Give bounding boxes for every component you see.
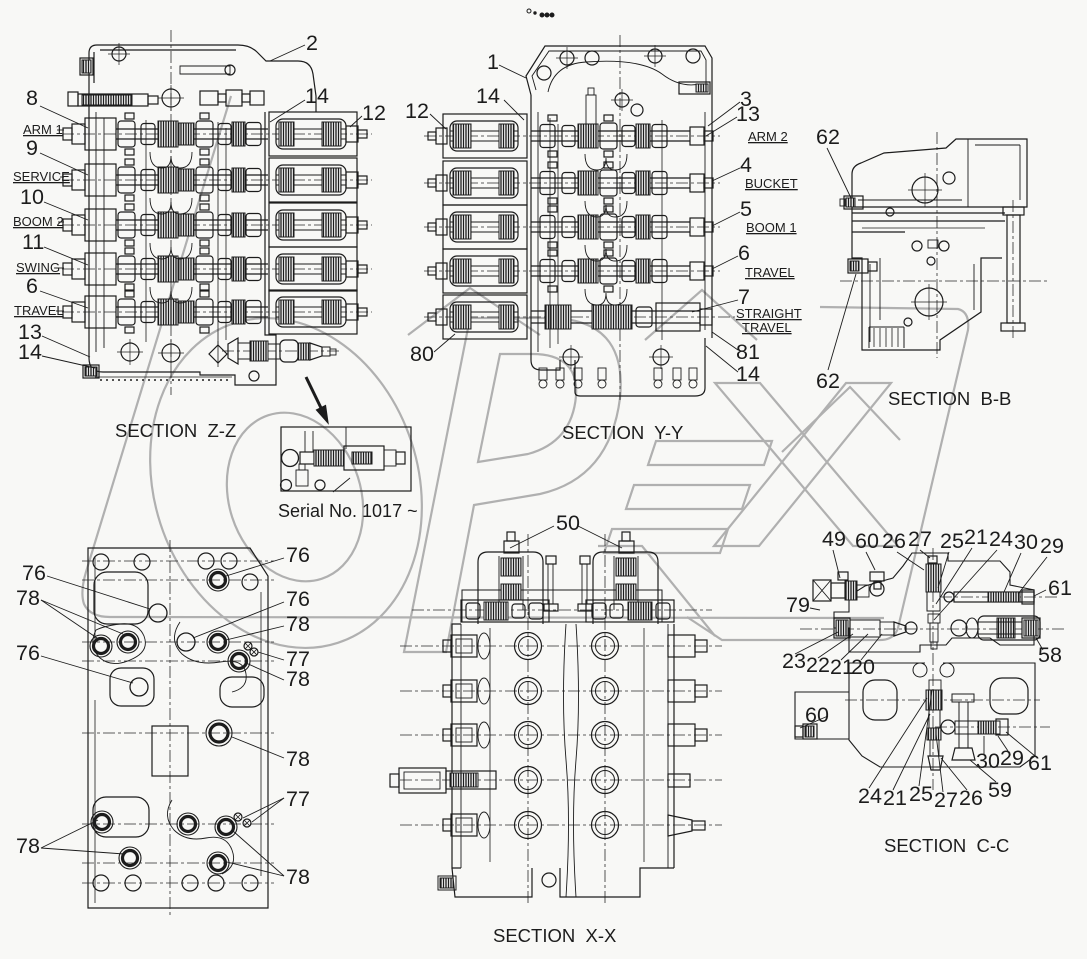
svg-text:11: 11	[22, 230, 44, 254]
svg-text:12: 12	[362, 101, 386, 125]
svg-text:61: 61	[1048, 576, 1072, 600]
svg-text:78: 78	[286, 865, 310, 889]
svg-text:SECTION X-X: SECTION X-X	[493, 925, 616, 946]
svg-text:79: 79	[786, 593, 810, 617]
svg-text:26: 26	[959, 786, 983, 810]
svg-text:24: 24	[858, 784, 882, 808]
svg-text:58: 58	[1038, 643, 1062, 667]
svg-text:25: 25	[909, 782, 933, 806]
svg-text:29: 29	[1000, 746, 1024, 770]
svg-text:TRAVEL: TRAVEL	[14, 303, 64, 318]
svg-text:6: 6	[26, 274, 38, 298]
svg-text:27: 27	[934, 788, 958, 812]
svg-text:81: 81	[736, 340, 760, 364]
svg-text:61: 61	[1028, 751, 1052, 775]
svg-text:49: 49	[822, 527, 846, 551]
svg-text:60: 60	[855, 529, 879, 553]
svg-text:21: 21	[964, 525, 988, 549]
svg-text:20: 20	[851, 655, 875, 679]
svg-text:76: 76	[16, 641, 40, 665]
svg-text:78: 78	[286, 667, 310, 691]
svg-text:23: 23	[782, 649, 806, 673]
svg-text:14: 14	[736, 362, 760, 386]
svg-text:78: 78	[16, 586, 40, 610]
svg-text:21: 21	[883, 786, 907, 810]
svg-text:62: 62	[816, 369, 840, 393]
svg-text:ARM 2: ARM 2	[748, 129, 788, 144]
svg-text:29: 29	[1040, 534, 1064, 558]
svg-text:SWING: SWING	[16, 260, 60, 275]
svg-text:76: 76	[286, 587, 310, 611]
svg-text:13: 13	[736, 102, 760, 126]
svg-text:BOOM 2: BOOM 2	[13, 214, 64, 229]
svg-text:76: 76	[22, 561, 46, 585]
svg-text:2: 2	[306, 31, 318, 55]
svg-text:ARM 1: ARM 1	[23, 122, 63, 137]
svg-text:SECTION B-B: SECTION B-B	[888, 388, 1011, 409]
svg-text:30: 30	[976, 749, 1000, 773]
svg-text:BUCKET: BUCKET	[745, 176, 798, 191]
svg-text:6: 6	[738, 241, 750, 265]
svg-text:BOOM 1: BOOM 1	[746, 220, 797, 235]
svg-text:14: 14	[305, 84, 329, 108]
svg-text:SECTION Z-Z: SECTION Z-Z	[115, 420, 236, 441]
svg-text:27: 27	[908, 527, 932, 551]
svg-text:5: 5	[740, 197, 752, 221]
svg-text:SECTION C-C: SECTION C-C	[884, 835, 1009, 856]
svg-text:9: 9	[26, 136, 38, 160]
svg-text:Serial No. 1017 ~: Serial No. 1017 ~	[278, 501, 418, 521]
svg-text:60: 60	[805, 703, 829, 727]
svg-text:8: 8	[26, 86, 38, 110]
svg-text:62: 62	[816, 125, 840, 149]
svg-text:10: 10	[20, 185, 44, 209]
svg-text:76: 76	[286, 543, 310, 567]
svg-text:80: 80	[410, 342, 434, 366]
svg-text:1: 1	[487, 50, 499, 74]
svg-text:59: 59	[988, 778, 1012, 802]
svg-text:14: 14	[476, 84, 500, 108]
svg-text:26: 26	[882, 529, 906, 553]
svg-text:12: 12	[405, 99, 429, 123]
svg-text:78: 78	[286, 612, 310, 636]
svg-text:78: 78	[286, 747, 310, 771]
svg-text:STRAIGHT: STRAIGHT	[736, 306, 802, 321]
svg-text:77: 77	[286, 787, 310, 811]
svg-text:50: 50	[556, 511, 580, 535]
svg-text:24: 24	[989, 527, 1013, 551]
svg-text:4: 4	[740, 153, 752, 177]
svg-text:SECTION Y-Y: SECTION Y-Y	[562, 422, 683, 443]
svg-text:14: 14	[18, 340, 42, 364]
svg-text:78: 78	[16, 834, 40, 858]
svg-text:TRAVEL: TRAVEL	[742, 320, 792, 335]
svg-text:TRAVEL: TRAVEL	[745, 265, 795, 280]
svg-text:30: 30	[1014, 530, 1038, 554]
svg-text:25: 25	[940, 529, 964, 553]
svg-text:22: 22	[806, 653, 830, 677]
svg-text:SERVICE: SERVICE	[13, 169, 70, 184]
